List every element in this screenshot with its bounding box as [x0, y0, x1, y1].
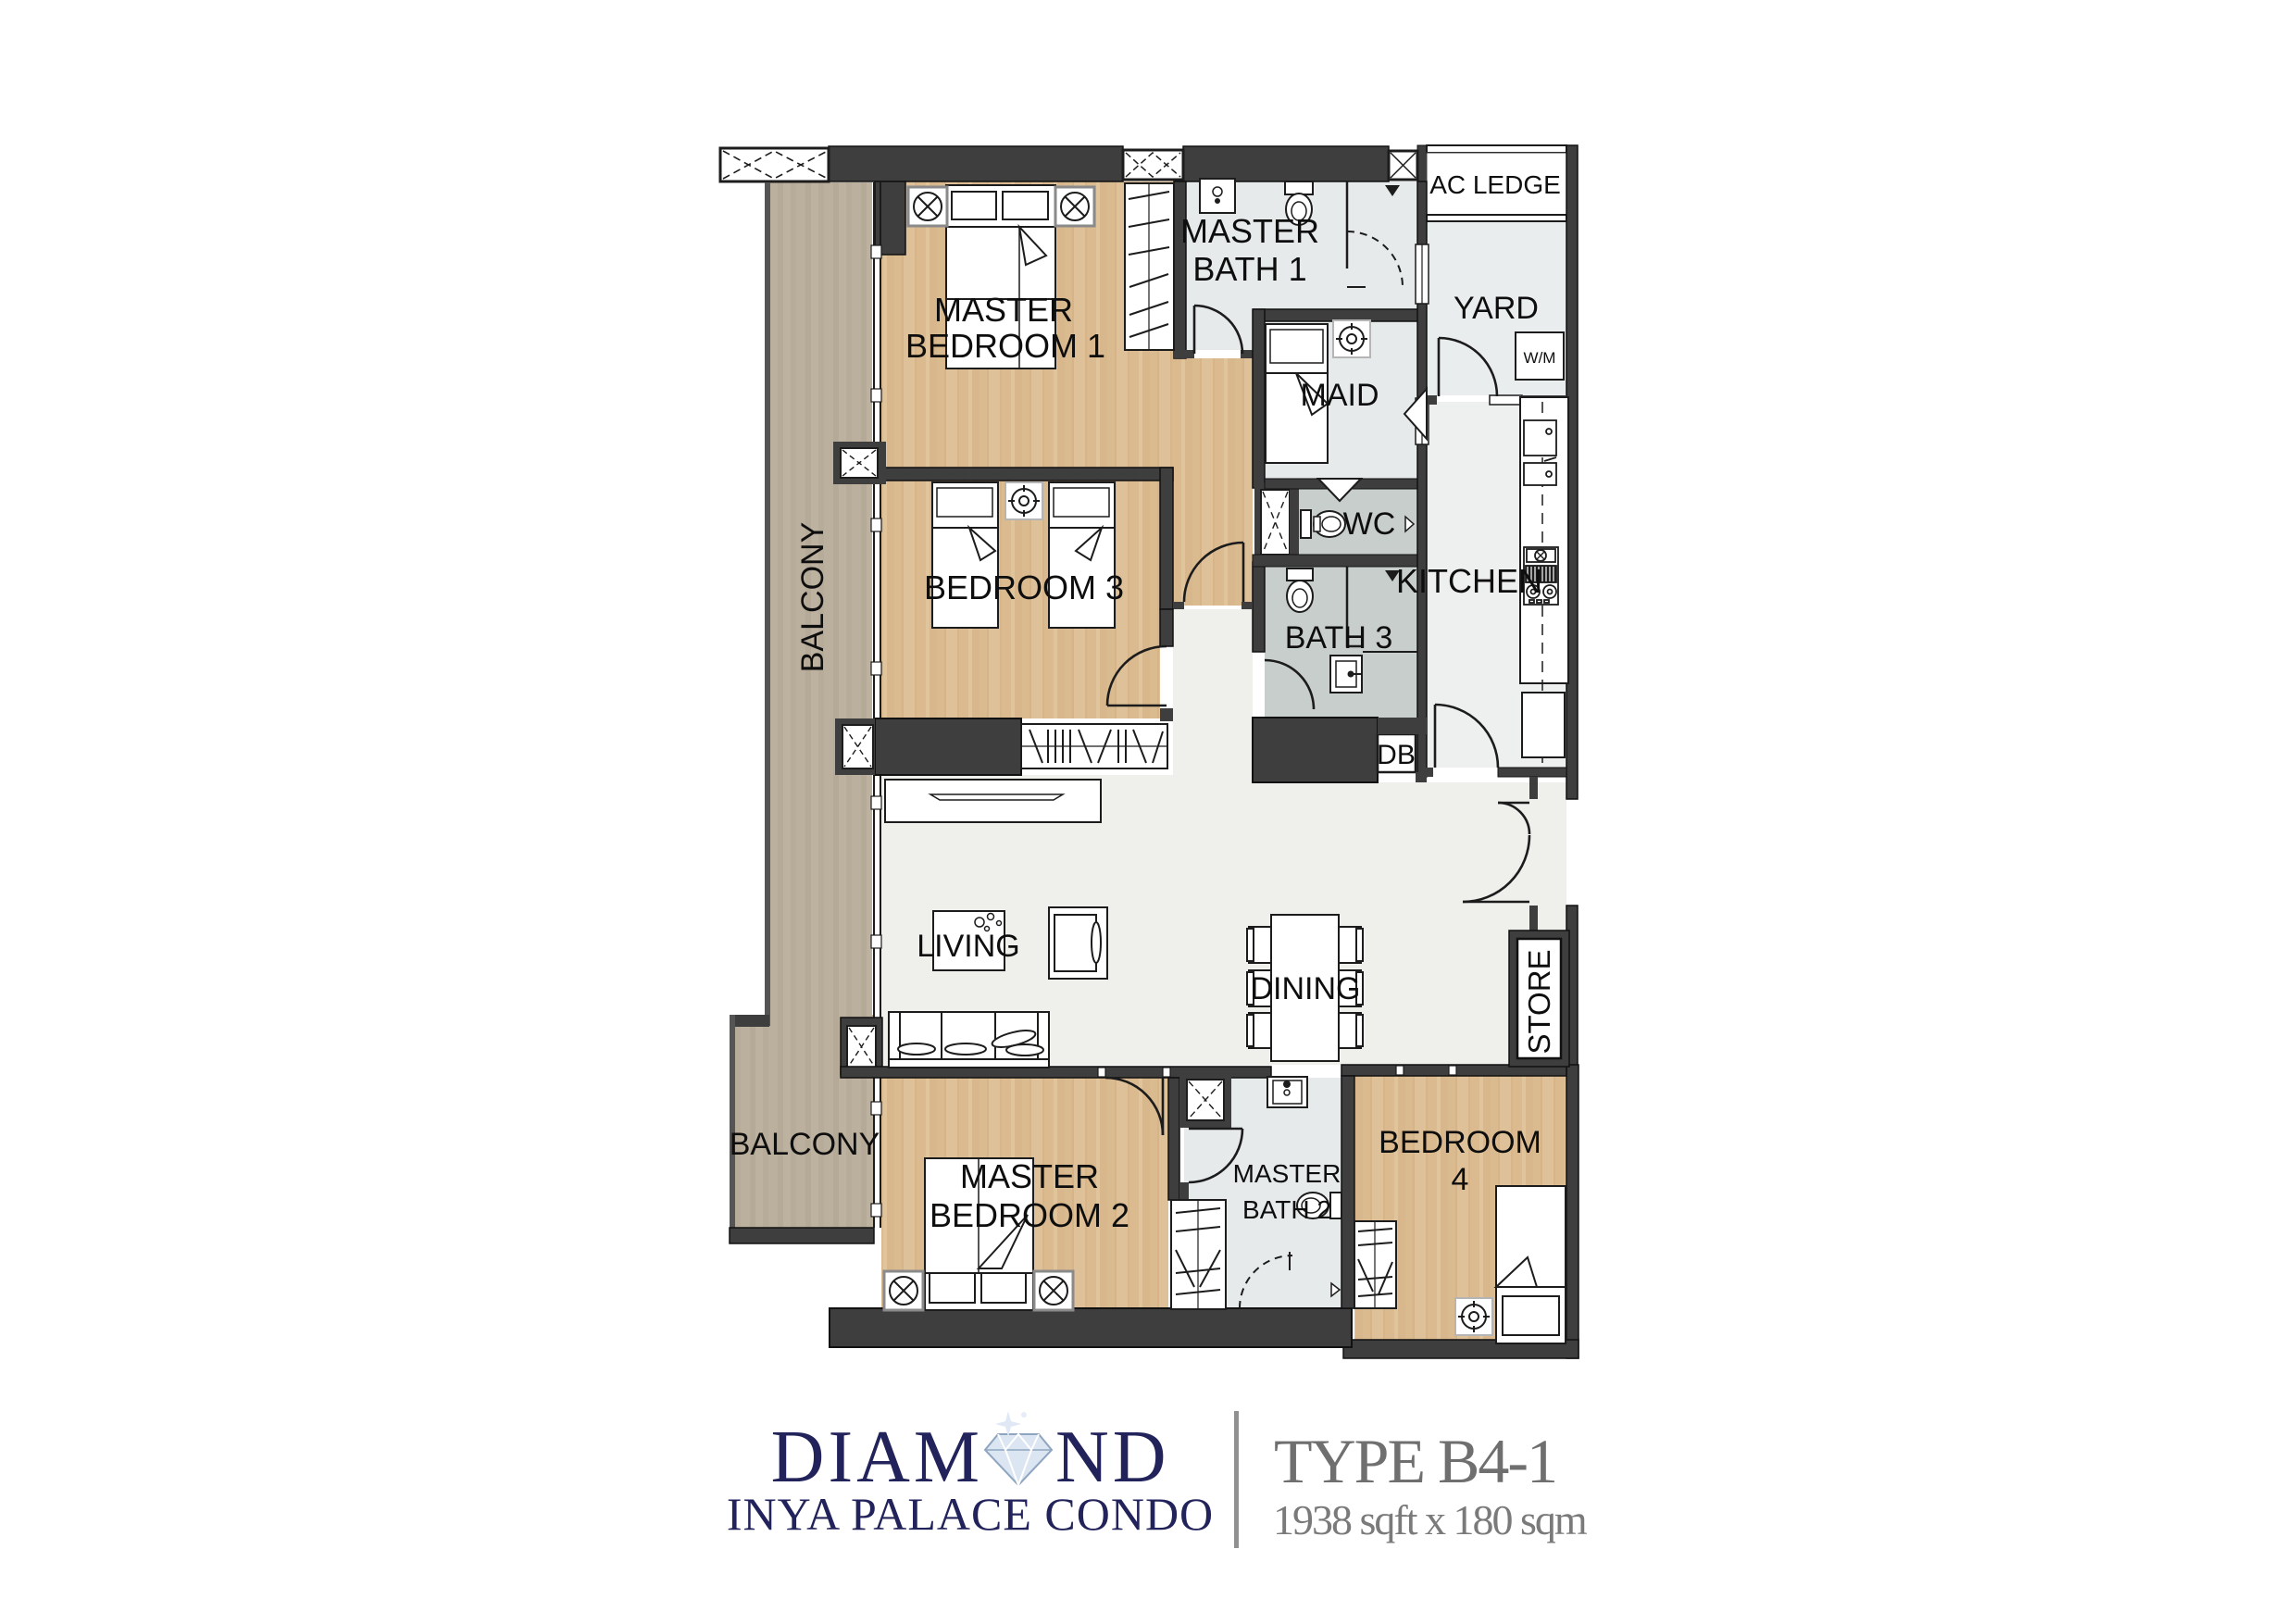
svg-text:LIVING: LIVING: [917, 929, 1019, 964]
svg-text:DB: DB: [1377, 740, 1416, 770]
svg-text:MASTER: MASTER: [1233, 1159, 1341, 1188]
svg-text:4: 4: [1452, 1162, 1469, 1197]
svg-text:WC: WC: [1343, 506, 1396, 542]
svg-text:MASTER: MASTER: [960, 1157, 1099, 1195]
svg-text:ND: ND: [1055, 1417, 1170, 1498]
svg-text:STORE: STORE: [1522, 949, 1556, 1054]
svg-text:DIAM: DIAM: [771, 1417, 983, 1498]
svg-text:BALCONY: BALCONY: [730, 1127, 880, 1162]
svg-text:DINING: DINING: [1251, 971, 1361, 1006]
svg-text:MAID: MAID: [1301, 378, 1379, 413]
svg-text:BATH 1: BATH 1: [1192, 250, 1306, 288]
svg-text:1938 sqft x 180 sqm: 1938 sqft x 180 sqm: [1273, 1496, 1588, 1543]
svg-text:BEDROOM 1: BEDROOM 1: [905, 327, 1105, 365]
svg-text:W/M: W/M: [1524, 349, 1556, 367]
svg-text:BEDROOM: BEDROOM: [1379, 1125, 1541, 1160]
svg-text:INYA PALACE CONDO: INYA PALACE CONDO: [727, 1488, 1214, 1540]
svg-text:BEDROOM 3: BEDROOM 3: [924, 568, 1124, 606]
svg-text:BATH 2: BATH 2: [1242, 1195, 1331, 1224]
svg-text:YARD: YARD: [1454, 291, 1539, 326]
svg-text:AC LEDGE: AC LEDGE: [1429, 170, 1561, 199]
svg-text:BEDROOM 2: BEDROOM 2: [930, 1196, 1129, 1234]
svg-text:MASTER: MASTER: [1180, 212, 1319, 250]
svg-text:KITCHEN: KITCHEN: [1396, 562, 1542, 600]
svg-text:TYPE B4-1: TYPE B4-1: [1274, 1426, 1556, 1496]
svg-text:BATH 3: BATH 3: [1285, 620, 1393, 656]
svg-text:BALCONY: BALCONY: [795, 522, 830, 673]
svg-text:MASTER: MASTER: [934, 291, 1073, 329]
